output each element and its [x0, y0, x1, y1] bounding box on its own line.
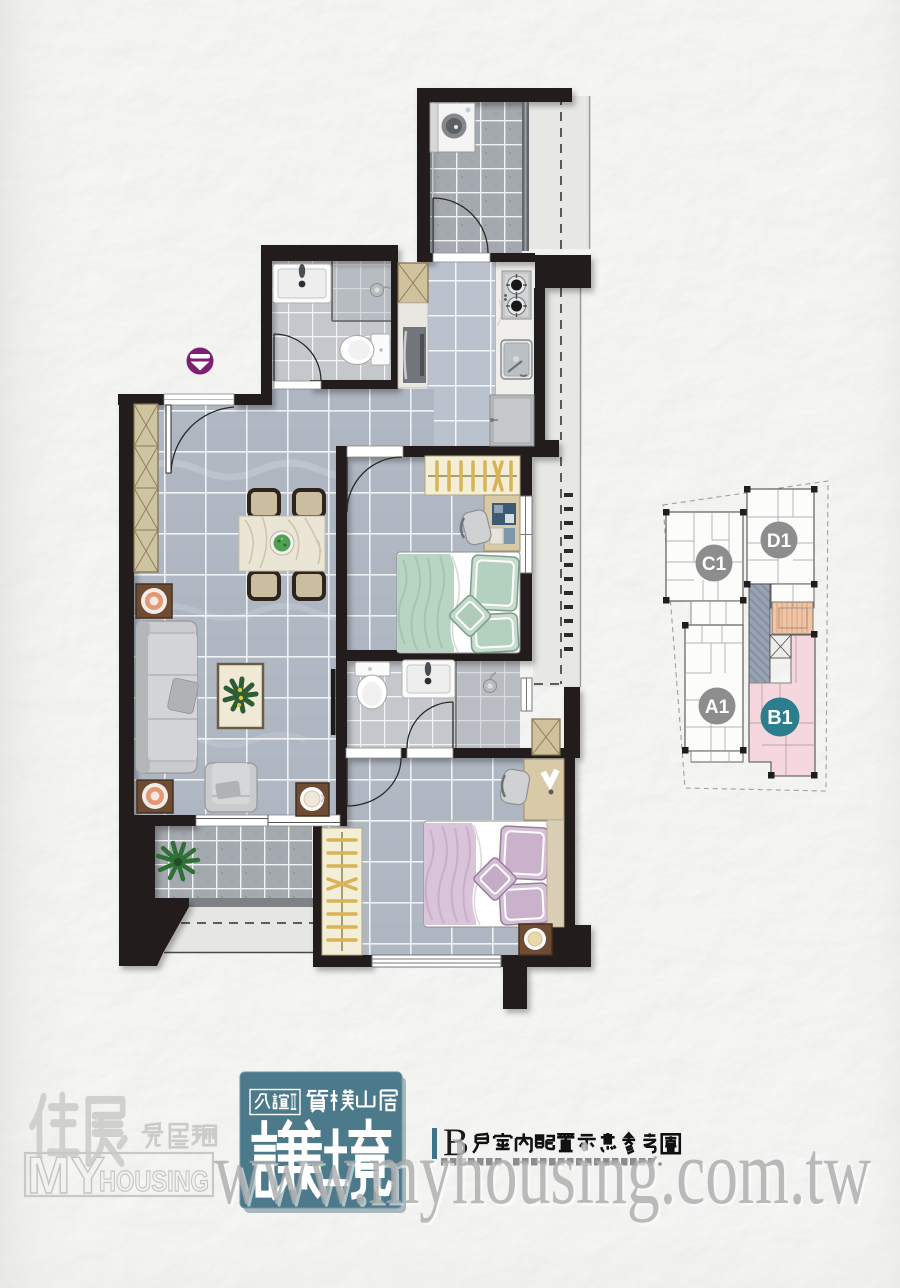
svg-text:B1: B1	[767, 707, 793, 729]
svg-text:www.myhousing.com.tw: www.myhousing.com.tw	[214, 1121, 871, 1223]
svg-text:HOUSING: HOUSING	[99, 1166, 209, 1198]
svg-text:MY: MY	[27, 1147, 105, 1205]
svg-text:A1: A1	[705, 697, 730, 718]
svg-text:D1: D1	[767, 531, 792, 552]
svg-text:C1: C1	[702, 554, 727, 575]
